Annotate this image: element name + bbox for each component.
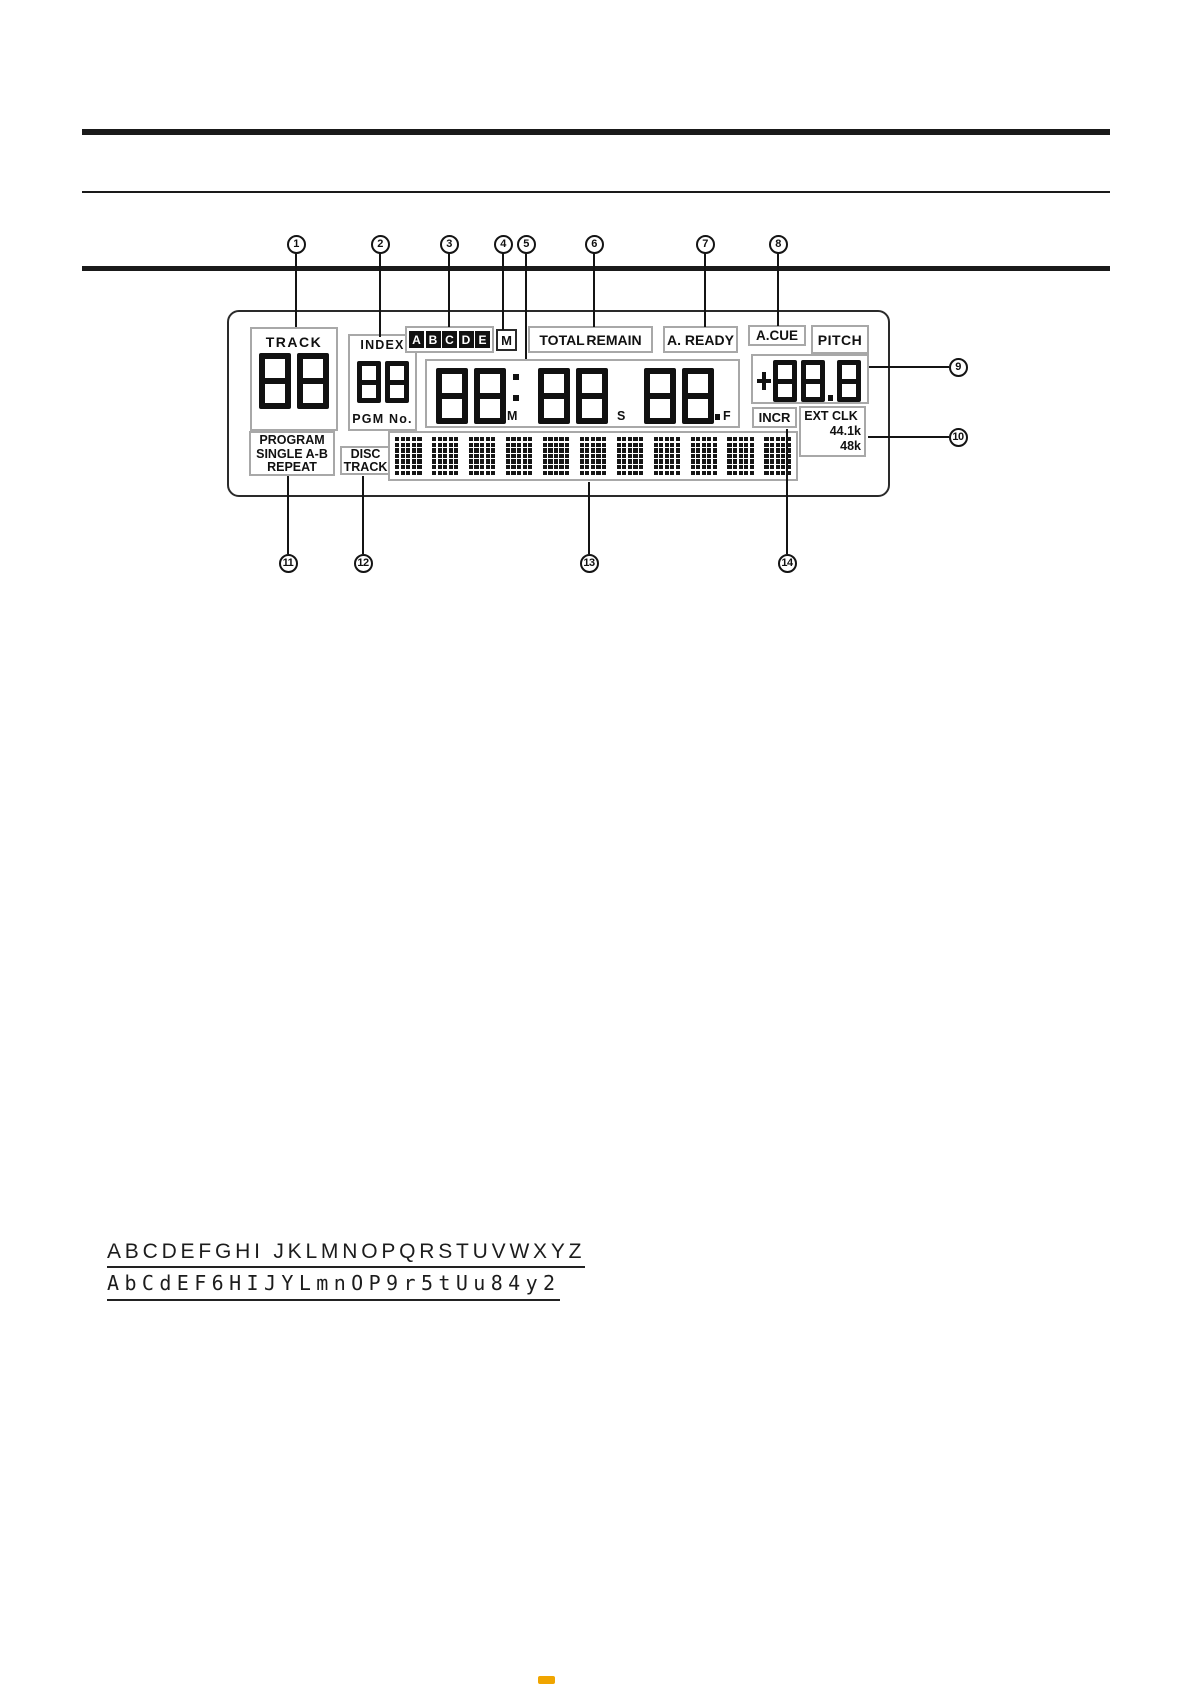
cue-letter-a: A: [409, 331, 424, 348]
index-digits: [355, 361, 411, 403]
frames-digits: [641, 368, 717, 424]
callout-line-14: [786, 429, 788, 554]
cue-letter-e: E: [475, 331, 490, 348]
callout-line-2: [379, 252, 381, 337]
dot-matrix-display: [388, 431, 798, 481]
pgm-no-label: PGM No.: [352, 412, 412, 426]
callout-line-10: [868, 436, 949, 438]
pitch-label: PITCH: [818, 332, 863, 348]
callout-line-8: [777, 252, 779, 326]
seconds-unit-label: S: [617, 409, 625, 423]
total-remain-section: TOTAL REMAIN: [528, 326, 653, 353]
m-indicator: M: [496, 329, 517, 351]
track-digits: [256, 353, 332, 409]
auto-cue-section: A.CUE: [748, 325, 806, 346]
total-remain-label: TOTAL REMAIN: [539, 332, 641, 348]
alphabet-plain-row: ABCDEFGHI JKLMNOPQRSTUVWXYZ: [107, 1240, 585, 1268]
a-cue-label: A.CUE: [756, 328, 798, 343]
matrix-cell: [654, 437, 681, 475]
matrix-cell: [506, 437, 533, 475]
matrix-cell: [691, 437, 718, 475]
seconds-digits: [535, 368, 611, 424]
callout-line-13: [588, 482, 590, 554]
colon-separator: [513, 374, 519, 402]
pitch-digits: [771, 360, 863, 402]
ext-clk-label: EXT CLK: [801, 409, 861, 424]
program-indicator: PROGRAM: [251, 434, 333, 448]
callout-circle-1: 1: [287, 235, 306, 254]
track-section: TRACK: [250, 327, 338, 431]
cue-letter-c: C: [442, 331, 457, 348]
callout-circle-8: 8: [769, 235, 788, 254]
callout-circle-14: 14: [778, 554, 797, 573]
index-label: INDEX: [360, 338, 404, 352]
callout-circle-10: 10: [949, 428, 968, 447]
dot-matrix-cells: [390, 433, 796, 479]
play-mode-section: PROGRAM SINGLE A-B REPEAT: [249, 431, 335, 476]
disc-track-indicator: TRACK: [342, 461, 389, 474]
disc-track-section: DISC TRACK: [340, 446, 391, 475]
cue-letter-indicators: ABCDE: [405, 326, 494, 353]
frame-dot-separator: [715, 414, 720, 420]
pitch-plus-minus-icon: [757, 372, 771, 390]
single-ab-indicator: SINGLE A-B: [251, 448, 333, 462]
matrix-cell: [580, 437, 607, 475]
callout-circle-12: 12: [354, 554, 373, 573]
auto-ready-section: A. READY: [663, 326, 738, 353]
callout-circle-13: 13: [580, 554, 599, 573]
callout-circle-6: 6: [585, 235, 604, 254]
cue-letter-b: B: [426, 331, 441, 348]
callout-line-9: [869, 366, 949, 368]
callout-line-12: [362, 476, 364, 554]
rate-44-1k-label: 44.1k: [801, 424, 861, 439]
callout-circle-7: 7: [696, 235, 715, 254]
callout-circle-4: 4: [494, 235, 513, 254]
callout-circle-2: 2: [371, 235, 390, 254]
callout-line-1: [295, 252, 297, 327]
minutes-unit-label: M: [507, 409, 517, 423]
cue-letter-d: D: [459, 331, 474, 348]
callout-circle-9: 9: [949, 358, 968, 377]
track-label: TRACK: [266, 334, 323, 350]
callout-line-6: [593, 252, 595, 327]
pitch-label-section: PITCH: [811, 325, 869, 354]
callout-line-4: [502, 252, 504, 330]
callout-circle-3: 3: [440, 235, 459, 254]
a-ready-label: A. READY: [667, 332, 734, 348]
callout-circle-11: 11: [279, 554, 298, 573]
top-thin-rule: [82, 191, 1110, 193]
incr-label: INCR: [759, 410, 791, 425]
pitch-value-display: [751, 354, 869, 404]
matrix-cell: [432, 437, 459, 475]
disc-indicator: DISC: [342, 448, 389, 461]
callout-line-5: [525, 252, 527, 359]
callout-circle-5: 5: [517, 235, 536, 254]
section-rule: [82, 266, 1110, 271]
incr-section: INCR: [752, 407, 797, 428]
matrix-cell: [469, 437, 496, 475]
rate-48k-label: 48k: [801, 439, 861, 454]
callout-line-11: [287, 476, 289, 554]
ext-clock-section: EXT CLK 44.1k 48k: [799, 406, 866, 457]
callout-line-7: [704, 252, 706, 327]
alphabet-segment-row: AbCdEF6HIJYLmnOP9r5tUu84y2: [107, 1271, 560, 1301]
matrix-cell: [395, 437, 422, 475]
frames-unit-label: F: [723, 409, 731, 423]
top-thick-rule: [82, 129, 1110, 135]
time-counter-display: M S F: [425, 359, 740, 428]
matrix-cell: [727, 437, 754, 475]
callout-line-3: [448, 252, 450, 327]
matrix-cell: [617, 437, 644, 475]
matrix-cell: [543, 437, 570, 475]
minutes-digits: [433, 368, 509, 424]
manual-page: TRACK PROGRAM SINGLE A-B REPEAT INDEX PG…: [0, 0, 1191, 1685]
page-bottom-highlight-mark: [538, 1676, 555, 1684]
repeat-indicator: REPEAT: [251, 461, 333, 475]
